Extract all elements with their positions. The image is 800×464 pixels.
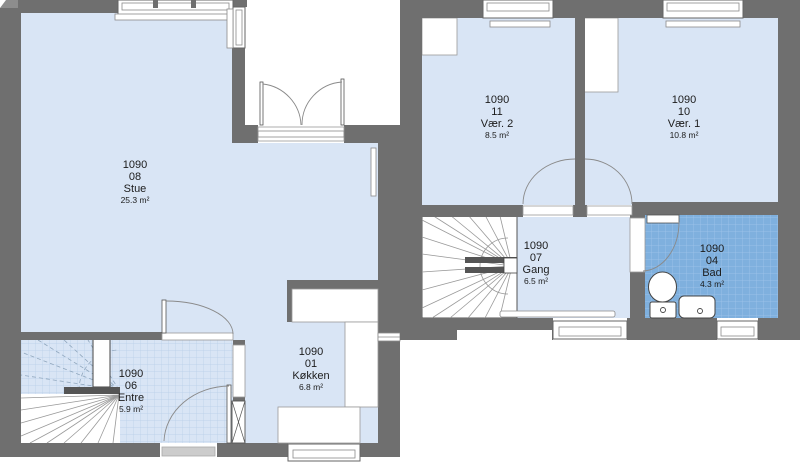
entre-name: Entre [118,392,144,404]
entry-recess [457,330,552,340]
vent-right-wall [378,333,400,341]
bad-number: 04 [706,255,718,267]
entre-area: 5.9 m² [119,404,143,414]
stair-flank-wall [93,335,110,387]
vaer2-number: 11 [491,106,502,118]
koekken-area: 6.8 m² [299,382,323,392]
shaft-vaer2 [422,18,457,55]
koekken-code: 1090 [299,346,323,358]
vaer1-number: 10 [678,106,690,118]
window-vaer1 [663,0,743,27]
bad-code: 1090 [700,243,724,255]
staircase-upper [422,215,517,318]
entre-code: 1090 [119,368,143,380]
vaer2-area: 8.5 m² [485,130,509,140]
ground-floor-plan: 1090 08 Stue 25.3 m² 1090 01 Køkken 6.8 … [0,0,400,461]
radiator-stue [371,148,376,196]
french-door [258,79,344,141]
upper-floor-plan: 1090 11 Vær. 2 8.5 m² 1090 10 Vær. 1 10.… [400,0,800,340]
stue-area: 25.3 m² [121,195,150,205]
vaer2-name: Vær. 2 [481,118,513,130]
floor-plan-svg: 1090 08 Stue 25.3 m² 1090 01 Køkken 6.8 … [0,0,800,464]
window-kitchen [288,444,360,461]
window-vaer2 [483,0,553,27]
opening-entre-koekken [233,345,245,397]
window-top-stue [115,0,233,20]
shaft-vaer1 [582,18,618,92]
stue-code: 1090 [123,159,147,171]
window-corner-stue [227,7,245,48]
vaer1-code: 1090 [672,94,696,106]
stue-name: Stue [124,183,147,195]
entre-number: 06 [125,380,137,392]
gang-name: Gang [523,264,550,276]
koekken-name: Køkken [292,370,329,382]
bad-name: Bad [702,267,722,279]
gang-number: 07 [530,252,542,264]
washbasin [679,296,715,318]
vaer1-name: Vær. 1 [668,118,700,130]
floor-plan-canvas: 1090 08 Stue 25.3 m² 1090 01 Køkken 6.8 … [0,0,800,464]
window-bad [717,321,758,339]
duct-shaft [232,401,245,443]
stair-newel [504,258,517,273]
toilet [649,272,677,318]
gang-area: 6.5 m² [524,276,548,286]
stue-number: 08 [129,171,141,183]
gang-code: 1090 [524,240,548,252]
vaer1-area: 10.8 m² [670,130,699,140]
koekken-number: 01 [305,358,317,370]
vaer2-code: 1090 [485,94,509,106]
bad-area: 4.3 m² [700,279,724,289]
stair-rail [64,387,120,394]
